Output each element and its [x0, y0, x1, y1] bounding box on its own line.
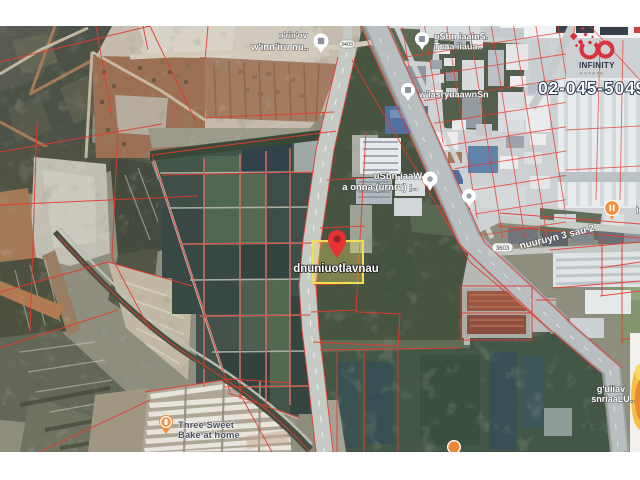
svg-text:uSbn iaainS.: uSbn iaainS. [434, 32, 488, 42]
svg-text:INFINITY: INFINITY [579, 61, 615, 70]
svg-text:dnuniuotlavnau: dnuniuotlavnau [293, 263, 379, 275]
svg-text:ESTATE: ESTATE [580, 71, 605, 76]
svg-text:id..: id.. [636, 205, 640, 215]
svg-text:g'uiiav: g'uiiav [597, 384, 625, 394]
svg-text:02-045-5049: 02-045-5049 [538, 78, 640, 98]
svg-text:w'inn'iru nu..: w'inn'iru nu.. [250, 42, 309, 53]
svg-text:uSbn iaaW: uSbn iaaW [374, 171, 423, 182]
svg-text:Bake at home: Bake at home [178, 430, 240, 441]
svg-text:n'rin'ov: n'rin'ov [279, 31, 308, 40]
svg-text:a onna (urnru) ;..: a onna (urnru) ;.. [342, 182, 417, 193]
svg-text:Tuaa iiaua..: Tuaa iiaua.. [434, 42, 482, 52]
svg-text:3603: 3603 [496, 246, 510, 252]
svg-text:w'iasryuaawnSn: w'iasryuaawnSn [418, 90, 489, 100]
svg-text:3403: 3403 [341, 42, 353, 48]
svg-text:snriaaLU..: snriaaLU.. [591, 394, 635, 404]
